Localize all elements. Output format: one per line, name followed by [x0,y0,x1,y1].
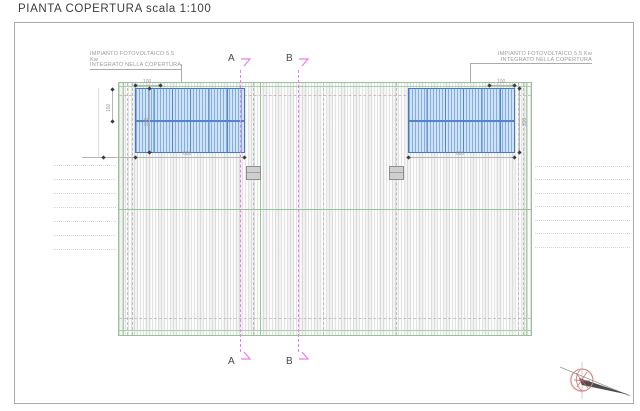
party-wall-line [260,83,261,335]
north-arrow-icon [546,354,636,402]
guide-line [53,221,116,222]
dim-right-width-text: 600 [456,151,464,157]
guide-line [535,247,630,248]
hidden-line [396,83,397,335]
pv-array-left [135,88,245,153]
pv-array-right [408,88,515,153]
dim-left-width-text: 600 [183,151,191,157]
hidden-line [119,318,531,319]
dim-line [519,88,520,153]
pv-label-left-line2: INTEGRATO NELLA COPERTURA [90,63,182,69]
guide-line [535,220,630,221]
guide-line [53,235,116,236]
guide-line [535,193,630,194]
section-label-a-bottom: A [228,356,235,367]
section-label-a-top: A [228,53,235,64]
dim-right-height-text: 330 [522,118,528,126]
guide-line [535,166,630,167]
roof-edge-inner-bottom [119,330,531,331]
pv-leader-right [470,64,471,82]
pv-label-left: IMPIANTO FOTOVOLTAICO 5.5 Kw INTEGRATO N… [90,52,182,70]
section-flag-icon [241,58,252,67]
guide-line [53,193,116,194]
dim-line [408,157,515,158]
section-label-b-top: B [286,53,293,64]
roof-hatch-left [246,166,261,180]
section-flag-icon [299,58,310,67]
dim-left-module-text: 100 [143,79,151,85]
guide-line [535,179,630,180]
pv-leader-left [181,64,182,82]
roof-ridge-line [119,209,531,210]
hidden-line [253,83,254,335]
dim-left-offset-text: 150 [106,104,112,112]
roof-edge-inner-top [119,86,531,87]
hidden-line [127,83,128,335]
drawing-sheet: PIANTA COPERTURA scala 1:100 [0,0,640,411]
guide-line [53,165,116,166]
hidden-line [132,83,133,335]
pv-label-right-line2: INTEGRATO NELLA COPERTURA [470,58,592,64]
section-flag-icon [299,351,310,360]
guide-line [535,206,630,207]
section-line-b [298,70,299,352]
guide-line [53,249,116,250]
dim-right-module-text: 100 [497,79,505,85]
drawing-title: PIANTA COPERTURA scala 1:100 [18,3,211,15]
dim-line [82,157,245,158]
roof-hatch-right [389,166,404,180]
hidden-line [323,83,324,335]
extension-line [98,88,99,158]
dim-line [112,89,113,122]
guide-line [535,233,630,234]
section-flag-icon [241,351,252,360]
section-line-a [240,70,241,352]
guide-line [53,207,116,208]
guide-line [53,179,116,180]
dim-left-height-text: 330 [144,118,150,126]
pv-label-right: IMPIANTO FOTOVOLTAICO 5.5 Kw INTEGRATO N… [470,52,592,64]
section-label-b-bottom: B [286,356,293,367]
